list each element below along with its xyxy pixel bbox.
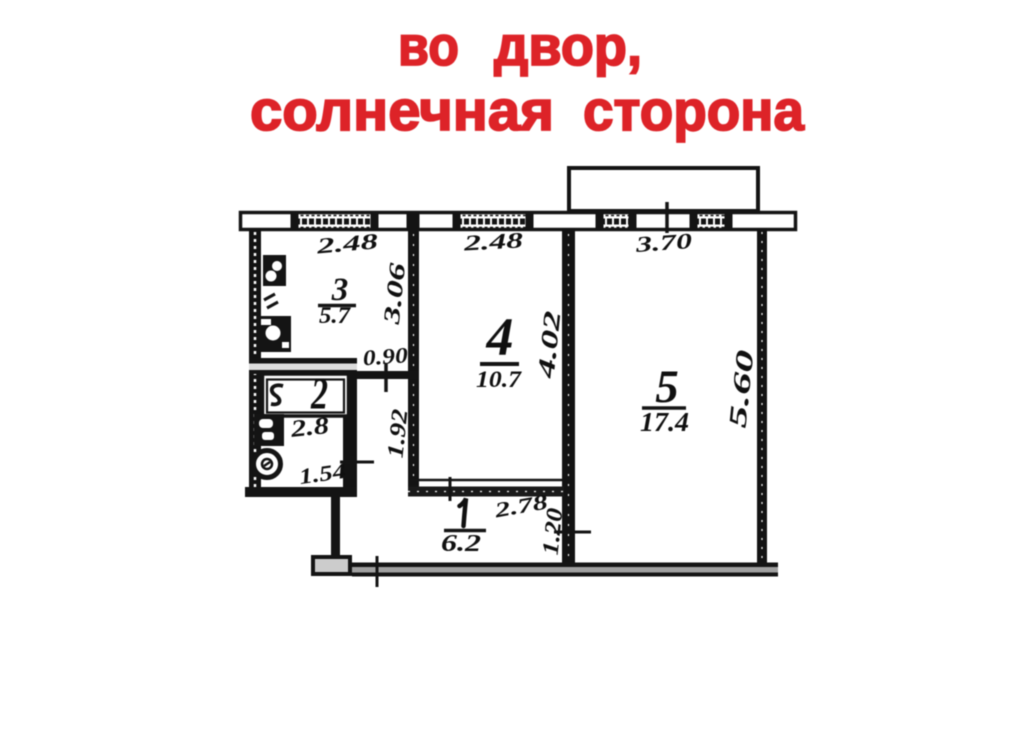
svg-text:5: 5: [655, 361, 679, 413]
svg-text:двор,: двор,: [494, 15, 642, 77]
svg-text:3.70: 3.70: [634, 228, 693, 257]
svg-text:0.90: 0.90: [362, 342, 409, 370]
svg-text:10.7: 10.7: [476, 367, 523, 392]
svg-text:во: во: [398, 15, 459, 77]
svg-text:сторона: сторона: [583, 79, 805, 143]
svg-text:1.92: 1.92: [383, 408, 413, 459]
svg-text:солнечная: солнечная: [250, 79, 554, 143]
svg-text:17.4: 17.4: [640, 407, 689, 437]
svg-text:6.2: 6.2: [441, 531, 481, 557]
svg-text:2.8: 2.8: [288, 413, 330, 443]
svg-text:5.7: 5.7: [319, 303, 352, 328]
svg-text:2.48: 2.48: [462, 227, 524, 255]
svg-text:4: 4: [486, 307, 514, 367]
svg-text:2: 2: [310, 369, 328, 418]
